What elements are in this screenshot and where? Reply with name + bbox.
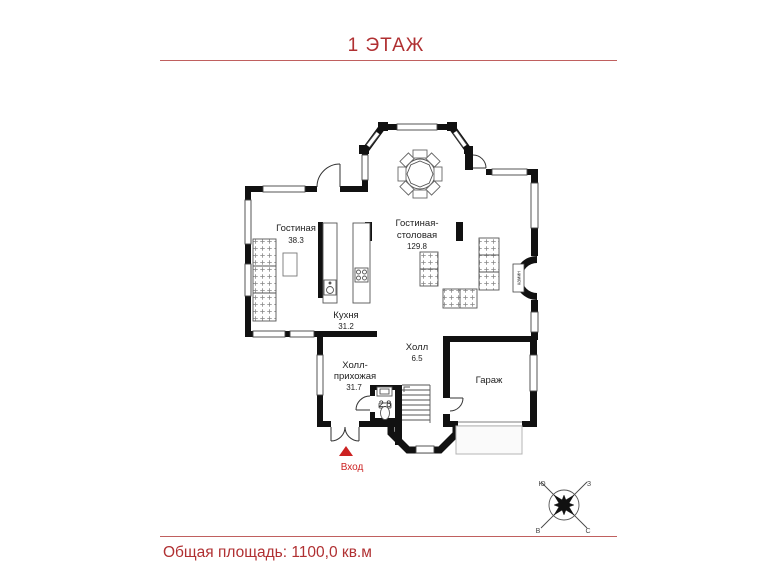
floor-plan-page: 1 ЭТАЖ Общая площадь: 1100,0 кв.м xyxy=(0,0,777,571)
room-label-garage: Гараж xyxy=(476,375,503,386)
window xyxy=(531,183,538,228)
floor-plan-drawing: 1 ЭТАЖ Общая площадь: 1100,0 кв.м xyxy=(0,0,777,571)
window xyxy=(245,200,251,244)
sofa-dining-east xyxy=(479,238,499,290)
window xyxy=(492,169,527,175)
door-living-north xyxy=(317,164,340,187)
room-label-living: Гостиная xyxy=(276,223,316,234)
staircase xyxy=(402,385,430,423)
room-area-entry: 31.7 xyxy=(346,383,362,392)
compass-rose: Ю З В С xyxy=(536,481,591,535)
kitchen-counter xyxy=(323,223,337,303)
sofa-dining-center xyxy=(420,252,438,286)
entrance-marker: Вход xyxy=(339,446,363,473)
room-area-living: 38.3 xyxy=(288,236,304,245)
window xyxy=(245,264,251,296)
fireplace-niche: камин xyxy=(513,256,537,300)
window xyxy=(531,312,538,332)
entrance-arrow-icon xyxy=(339,446,353,456)
door-garage-inner xyxy=(450,398,463,411)
fireplace-label: камин xyxy=(517,271,523,285)
page-title: 1 ЭТАЖ xyxy=(348,35,425,56)
sofa-living xyxy=(253,239,276,321)
room-labels: Гостиная 38.3 Гостиная- столовая 129.8 К… xyxy=(276,218,503,409)
window xyxy=(362,155,368,180)
room-area-dining: 129.8 xyxy=(407,242,428,251)
room-label-kitchen: Кухня xyxy=(333,310,358,321)
room-label-hall: Холл xyxy=(406,342,428,353)
door-dining-east xyxy=(473,155,486,168)
window xyxy=(253,331,285,337)
coffee-table xyxy=(283,253,297,276)
sofa-dining-south xyxy=(443,289,477,308)
door-wc xyxy=(356,396,370,410)
room-area-wc: 2.8 xyxy=(379,399,392,409)
garage-apron xyxy=(456,426,522,454)
entrance-double-door xyxy=(331,427,359,441)
window xyxy=(317,355,323,395)
room-label-dining-2: столовая xyxy=(397,230,437,241)
window xyxy=(263,186,305,192)
window xyxy=(416,446,434,453)
compass-label-south: Ю xyxy=(538,481,545,488)
garage-door xyxy=(458,422,522,426)
compass-label-east: В xyxy=(536,528,541,535)
room-label-dining-1: Гостиная- xyxy=(395,218,438,229)
cooktop xyxy=(355,268,368,282)
room-label-entry-1: Холл- xyxy=(342,360,368,371)
compass-label-west: З xyxy=(587,481,591,488)
window xyxy=(397,124,437,130)
compass-label-north: С xyxy=(585,528,590,535)
compass-star xyxy=(554,495,574,515)
kitchen-island xyxy=(353,223,370,303)
window xyxy=(290,331,314,337)
entrance-label: Вход xyxy=(341,462,364,473)
window xyxy=(530,355,537,391)
total-area-label: Общая площадь: 1100,0 кв.м xyxy=(163,544,372,561)
room-area-kitchen: 31.2 xyxy=(338,322,354,331)
stairs-direction-mark xyxy=(404,387,410,392)
room-area-hall: 6.5 xyxy=(411,354,423,363)
room-label-entry-2: прихожая xyxy=(334,371,376,382)
